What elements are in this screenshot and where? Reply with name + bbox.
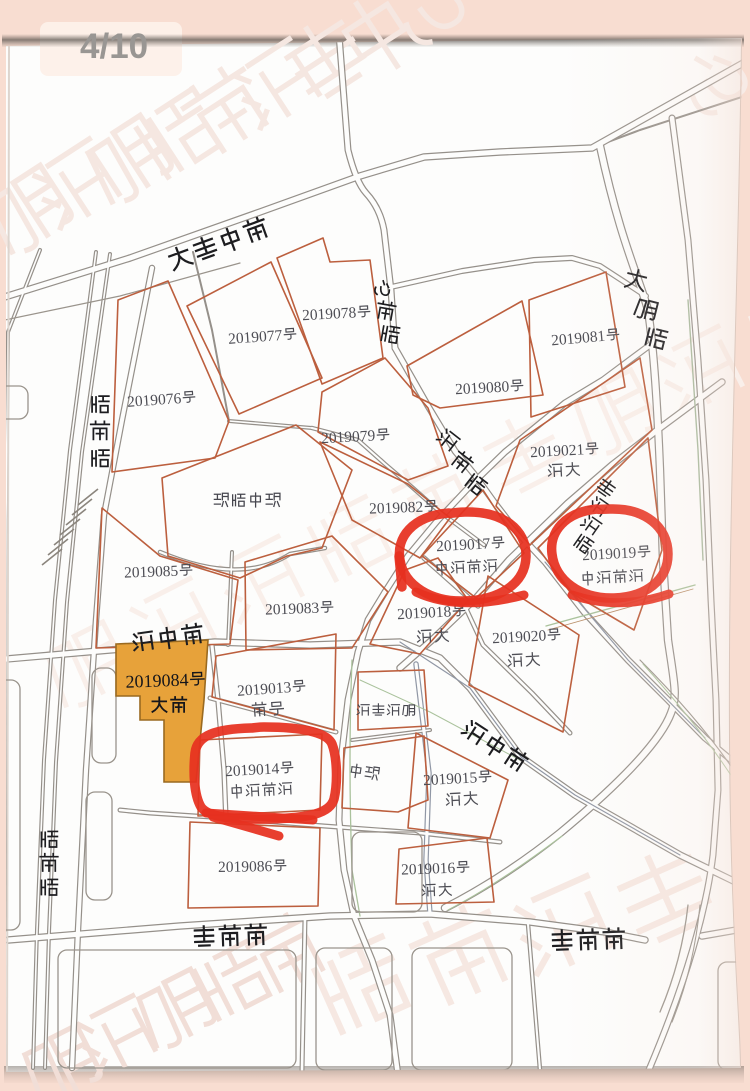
svg-text:2019016: 2019016 bbox=[401, 860, 456, 879]
svg-text:2019083: 2019083 bbox=[265, 600, 320, 619]
svg-text:2019020: 2019020 bbox=[492, 627, 547, 647]
svg-text:2019085: 2019085 bbox=[124, 563, 179, 582]
svg-text:2019084: 2019084 bbox=[125, 670, 189, 692]
svg-text:2019086: 2019086 bbox=[218, 858, 273, 876]
svg-text:2019079: 2019079 bbox=[321, 427, 376, 447]
svg-text:2019017: 2019017 bbox=[436, 535, 491, 555]
svg-text:2019078: 2019078 bbox=[302, 304, 357, 324]
svg-text:2019015: 2019015 bbox=[423, 769, 478, 789]
svg-text:2019014: 2019014 bbox=[225, 760, 280, 780]
svg-text:4/10: 4/10 bbox=[80, 27, 148, 66]
svg-text:2019082: 2019082 bbox=[369, 499, 424, 518]
svg-text:2019018: 2019018 bbox=[397, 603, 452, 623]
svg-text:2019080: 2019080 bbox=[455, 378, 510, 398]
